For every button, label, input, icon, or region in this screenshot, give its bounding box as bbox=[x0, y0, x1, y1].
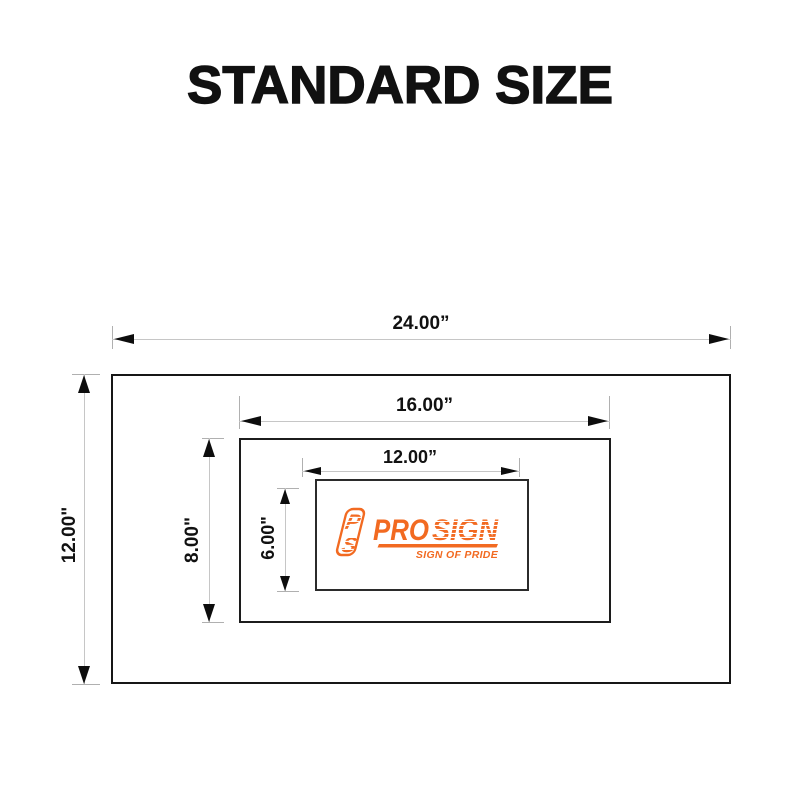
logo-monogram-s-letter: S bbox=[339, 533, 359, 557]
arrowhead-right-icon bbox=[709, 334, 729, 344]
logo-tagline: SIGN OF PRIDE bbox=[416, 549, 499, 561]
arrowhead-down-icon bbox=[280, 576, 290, 591]
dim-extension-tick bbox=[202, 622, 224, 623]
diagram-canvas: STANDARD SIZE 24.00” 16.00” 12.00” bbox=[0, 0, 800, 800]
dim-label-outer-height: 12.00" bbox=[59, 490, 81, 580]
dim-extension-tick bbox=[72, 684, 100, 685]
dim-line bbox=[239, 421, 610, 422]
dim-line bbox=[209, 438, 210, 622]
page-title: STANDARD SIZE bbox=[0, 57, 800, 115]
arrowhead-left-icon bbox=[241, 416, 261, 426]
logo-monogram: P S bbox=[335, 509, 365, 557]
prosign-logo: P S PRO SIGN SIGN OF PRIDE bbox=[330, 502, 508, 564]
dim-label-inner-width: 12.00” bbox=[295, 447, 525, 467]
logo-text-sign: SIGN bbox=[432, 514, 499, 547]
dim-extension-tick bbox=[277, 591, 299, 592]
dim-line bbox=[112, 339, 731, 340]
dim-line bbox=[84, 374, 85, 684]
arrowhead-right-icon bbox=[588, 416, 608, 426]
dim-label-middle-height: 8.00" bbox=[182, 500, 204, 580]
arrowhead-down-icon bbox=[78, 666, 90, 684]
logo-text-pro: PRO bbox=[373, 514, 429, 547]
arrowhead-right-icon bbox=[501, 467, 518, 475]
dim-label-inner-height: 6.00" bbox=[258, 503, 278, 573]
logo-underline-bar bbox=[378, 544, 499, 548]
arrowhead-up-icon bbox=[203, 439, 215, 457]
arrowhead-down-icon bbox=[203, 604, 215, 622]
arrowhead-left-icon bbox=[114, 334, 134, 344]
arrowhead-left-icon bbox=[304, 467, 321, 475]
dim-line bbox=[302, 471, 520, 472]
dim-label-middle-width: 16.00” bbox=[239, 395, 610, 417]
arrowhead-up-icon bbox=[78, 375, 90, 393]
dim-label-outer-width: 24.00” bbox=[111, 313, 731, 335]
arrowhead-up-icon bbox=[280, 489, 290, 504]
